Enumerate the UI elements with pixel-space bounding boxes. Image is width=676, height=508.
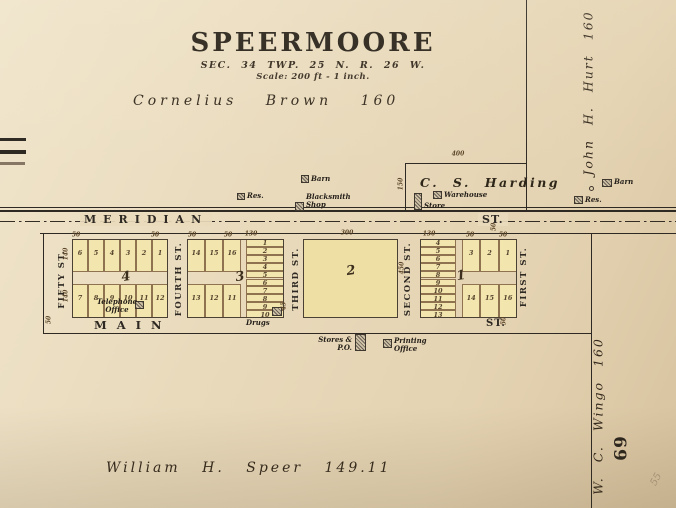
road-south-edge <box>40 233 676 234</box>
dimension-label-130-5: 130 <box>423 231 436 238</box>
owner-cornelius-brown: Cornelius Brown 160 <box>133 93 399 109</box>
dimension-label-400-0: 400 <box>452 151 465 158</box>
dimension-label-50-10: 50 <box>466 232 474 239</box>
road-north-edge-inner <box>0 210 676 211</box>
owner-w-c-wingo: W. C. Wingo 160 <box>591 337 606 495</box>
dimension-label-130-4: 130 <box>245 231 258 238</box>
barn-east-marker <box>602 179 612 187</box>
printing-office-label: PrintingOffice <box>394 337 427 353</box>
harding-parcel-top <box>405 163 527 164</box>
harding-parcel-left <box>405 163 406 210</box>
warehouse-marker <box>433 191 442 199</box>
store-marker <box>414 193 422 210</box>
store-label: Store <box>424 202 445 210</box>
section-line-south <box>591 234 592 508</box>
dimension-label-50-6: 50 <box>72 232 80 239</box>
owner-c-s-harding: C. S. Harding <box>420 175 560 190</box>
block-number-1: 1 <box>455 268 466 284</box>
street-label-second: SECOND ST. <box>403 242 413 316</box>
blacksmith-shop-marker <box>295 202 304 211</box>
page-number: 69 <box>609 436 629 462</box>
street-label-main: MAIN <box>90 318 176 332</box>
dimension-label-50-13: 50 <box>501 317 508 325</box>
street-label-meridian: MERIDIAN <box>80 213 212 226</box>
res-east-label: Res. <box>585 196 602 204</box>
town-name: SPEERMOORE <box>158 28 468 58</box>
barn-west-label: Barn <box>311 175 330 183</box>
stores-po-marker <box>355 334 366 351</box>
plat-south-boundary <box>43 333 592 334</box>
printing-office-marker <box>383 339 392 348</box>
barn-east-label: Barn <box>614 178 633 186</box>
res-east-well-circle <box>589 186 594 191</box>
res-west-marker <box>237 193 245 200</box>
warehouse-label: Warehouse <box>444 191 487 199</box>
telephone-office-label: TelephoneOffice <box>94 298 140 314</box>
res-east-marker <box>574 196 583 204</box>
owner-john-h-hurt: John H. Hurt 160 <box>581 10 596 175</box>
dimension-label-50-14: 50 <box>46 316 53 324</box>
plat-map: SPEERMOORE SEC. 34 TWP. 25 N. R. 26 W. S… <box>0 0 676 508</box>
block-number-2: 2 <box>345 263 356 279</box>
drugs-label: Drugs <box>246 319 270 327</box>
scale-line: Scale: 200 ft - 1 inch. <box>158 72 468 82</box>
section-line-north <box>526 0 527 210</box>
block-number-3: 3 <box>234 269 245 285</box>
street-label-third: THIRD ST. <box>291 247 301 311</box>
dimension-label-140-16: 140 <box>63 290 70 303</box>
plat-west-boundary <box>43 233 44 333</box>
dimension-label-50-12: 50 <box>491 223 498 231</box>
binding-mark-3 <box>0 162 25 165</box>
stores-po-label: Stores &P.O. <box>314 336 352 352</box>
owner-william-h-speer: William H. Speer 149.11 <box>106 460 392 476</box>
dimension-label-45-17: 45 <box>281 302 288 310</box>
barn-west-marker <box>301 175 309 183</box>
blacksmith-shop-label: BlacksmithShop <box>306 193 351 209</box>
dimension-label-50-11: 50 <box>499 232 507 239</box>
dimension-label-50-7: 50 <box>151 232 159 239</box>
block-number-4: 4 <box>120 269 131 285</box>
street-label-fourth: FOURTH ST. <box>174 242 184 316</box>
street-label-first: FIRST ST. <box>519 247 529 307</box>
dimension-label-300-2: 300 <box>341 230 354 237</box>
dimension-label-50-9: 50 <box>224 232 232 239</box>
pencil-note: 55 <box>649 471 665 487</box>
dimension-label-150-1: 150 <box>398 178 405 191</box>
dimension-label-140-15: 140 <box>63 248 70 261</box>
dimension-label-450-3: 450 <box>399 262 406 275</box>
binding-mark-2 <box>0 150 26 154</box>
dimension-label-50-8: 50 <box>188 232 196 239</box>
res-west-label: Res. <box>247 192 264 200</box>
section-township-line: SEC. 34 TWP. 25 N. R. 26 W. <box>158 60 468 71</box>
map-title-block: SPEERMOORE SEC. 34 TWP. 25 N. R. 26 W. S… <box>158 28 468 82</box>
block-1-outline <box>420 239 517 318</box>
binding-mark-1 <box>0 138 26 141</box>
